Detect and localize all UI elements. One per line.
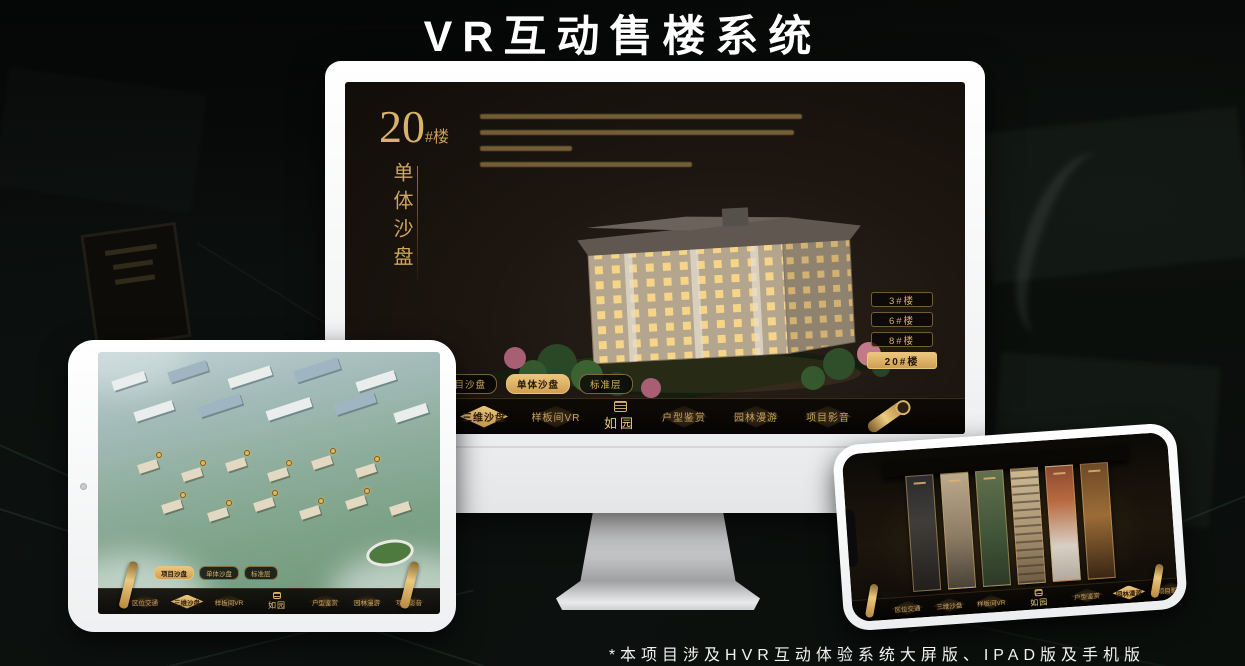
aerial-building [197,393,242,417]
building-marker[interactable] [200,460,206,466]
map-faded-image-patch [0,67,207,214]
gallery-card-row [843,458,1176,596]
nav-item-label: 样板间VR [215,597,244,607]
building-button-6[interactable]: 6#楼 [871,312,933,327]
building-marker[interactable] [272,490,278,496]
aerial-building [355,463,377,478]
nav-item-label: 园林漫游 [734,409,778,424]
nav-item-label: 项目影音 [1157,584,1178,596]
footnote-text: *本项目涉及HVR互动体验系统大屏版、IPAD版及手机版 [609,641,1145,665]
nav-item-label: 区位交通 [894,602,921,614]
aerial-building [225,457,247,472]
seal-icon [273,592,281,599]
phone-nav-item-floorplan-gallery[interactable]: 户型鉴赏 [1065,584,1108,607]
tablet-tab-standard-floor[interactable]: 标准层 [244,566,278,580]
tablet-tab-single-building-sandbox[interactable]: 单体沙盘 [199,566,239,580]
headline-divider [417,166,418,286]
aerial-building [355,370,396,392]
nav-item-garden-tour[interactable]: 园林漫游 [721,402,791,432]
phone-nav-item-location-traffic[interactable]: 区位交通 [886,596,929,619]
nav-item-label: 户型鉴赏 [662,409,706,424]
phone-nav-item-showroom-vr[interactable]: 样板间VR [970,591,1013,614]
gallery-card[interactable] [940,472,976,590]
gallery-card[interactable] [1079,462,1115,580]
tablet-tab-project-sandbox[interactable]: 项目沙盘 [154,566,194,580]
tablet-nav-item-3d-sandbox[interactable]: 三维沙盘 [166,592,208,612]
gallery-card[interactable] [905,474,941,592]
headline-subtitle: 单体沙盘 [387,162,416,274]
brand-logo-text: 如园 [604,413,636,432]
nav-item-floorplan-gallery[interactable]: 户型鉴赏 [649,402,719,432]
nav-item-label: 户型鉴赏 [1074,589,1101,601]
nav-item-label: 三维沙盘 [174,597,200,607]
phone-nav-item-garden-tour[interactable]: 园林漫游 [1107,581,1150,604]
aerial-building [137,459,159,474]
building-marker[interactable] [374,456,380,462]
tablet-bottom-nav: 区位交通 三维沙盘 样板间VR 如园 户型鉴赏 园林漫游 [98,588,440,614]
seal-icon [1034,589,1042,597]
tablet-device: 项目沙盘 单体沙盘 标准层 区位交通 三维沙盘 样板间VR 如园 [68,340,456,632]
building-button-8[interactable]: 8#楼 [871,332,933,347]
building-marker[interactable] [286,460,292,466]
building-marker[interactable] [226,500,232,506]
gallery-card[interactable] [1009,467,1045,585]
nav-item-label: 三维沙盘 [936,599,963,611]
aerial-building [293,357,340,383]
monitor-sub-tabs: 项目沙盘 单体沙盘 标准层 [433,374,633,394]
phone-nav-item-3d-sandbox[interactable]: 三维沙盘 [928,593,971,616]
framed-certificate [80,222,191,350]
tablet-nav-item-showroom-vr[interactable]: 样板间VR [208,592,250,612]
tablet-screen-aerial-view[interactable]: 项目沙盘 单体沙盘 标准层 区位交通 三维沙盘 样板间VR 如园 [98,352,440,614]
brand-logo-text: 如园 [1030,597,1049,609]
tablet-nav-item-floorplan-gallery[interactable]: 户型鉴赏 [304,592,346,612]
building-marker[interactable] [330,448,336,454]
tablet-brand-logo: 如园 [250,592,304,611]
aerial-building [389,501,411,516]
nav-item-label: 园林漫游 [354,597,380,607]
aerial-building [266,397,313,421]
aerial-building [133,400,174,422]
phone-device: 区位交通 三维沙盘 样板间VR 如园 户型鉴赏 园林漫游 [832,422,1188,632]
aerial-building [299,505,321,520]
nav-item-project-media[interactable]: 项目影音 [793,402,863,432]
building-marker[interactable] [180,492,186,498]
scroll-handle-icon[interactable] [866,399,909,434]
nav-item-showroom-vr[interactable]: 样板间VR [521,402,591,432]
aerial-building [181,467,203,482]
aerial-building [267,467,289,482]
tab-single-building-sandbox[interactable]: 单体沙盘 [506,374,570,394]
gallery-card[interactable] [975,469,1011,587]
tablet-camera-icon [80,483,87,490]
aerial-building [393,403,428,423]
brand-logo: 如园 [593,401,647,432]
building-button-20[interactable]: 20#楼 [867,352,937,369]
phone-screen-gallery-view[interactable]: 区位交通 三维沙盘 样板间VR 如园 户型鉴赏 园林漫游 [842,432,1179,622]
aerial-building [161,499,183,514]
building-marker[interactable] [318,498,324,504]
section-headline: 20#楼 [379,104,449,150]
tablet-nav-item-garden-tour[interactable]: 园林漫游 [346,592,388,612]
aerial-building [253,497,275,512]
nav-item-label: 项目影音 [806,409,850,424]
building-button-3[interactable]: 3#楼 [871,292,933,307]
nav-item-label: 区位交通 [132,597,158,607]
aerial-building [333,392,376,415]
nav-item-label: 园林漫游 [1116,586,1143,598]
headline-number: 20 [379,101,425,152]
building-marker[interactable] [244,450,250,456]
page-title: VR互动售楼系统 [0,2,1245,64]
building-button-group: 3#楼 6#楼 8#楼 20#楼 [867,292,937,369]
aerial-building [207,507,229,522]
nav-item-label: 三维沙盘 [462,409,506,424]
seal-icon [614,401,627,412]
tablet-sub-tabs: 项目沙盘 单体沙盘 标准层 [154,566,278,580]
headline-suffix: #楼 [425,129,449,146]
tab-standard-floor[interactable]: 标准层 [579,374,633,394]
nav-item-label: 样板间VR [532,409,581,424]
gallery-card[interactable] [1044,465,1080,583]
aerial-building [345,495,367,510]
nav-item-3d-sandbox[interactable]: 三维沙盘 [449,402,519,432]
nav-item-label: 样板间VR [977,596,1006,608]
phone-brand-logo: 如园 [1011,587,1066,610]
building-marker[interactable] [156,452,162,458]
brand-logo-text: 如园 [268,600,286,611]
nav-item-label: 户型鉴赏 [312,597,338,607]
aerial-building [311,455,333,470]
building-marker[interactable] [364,488,370,494]
aerial-building [228,365,273,388]
